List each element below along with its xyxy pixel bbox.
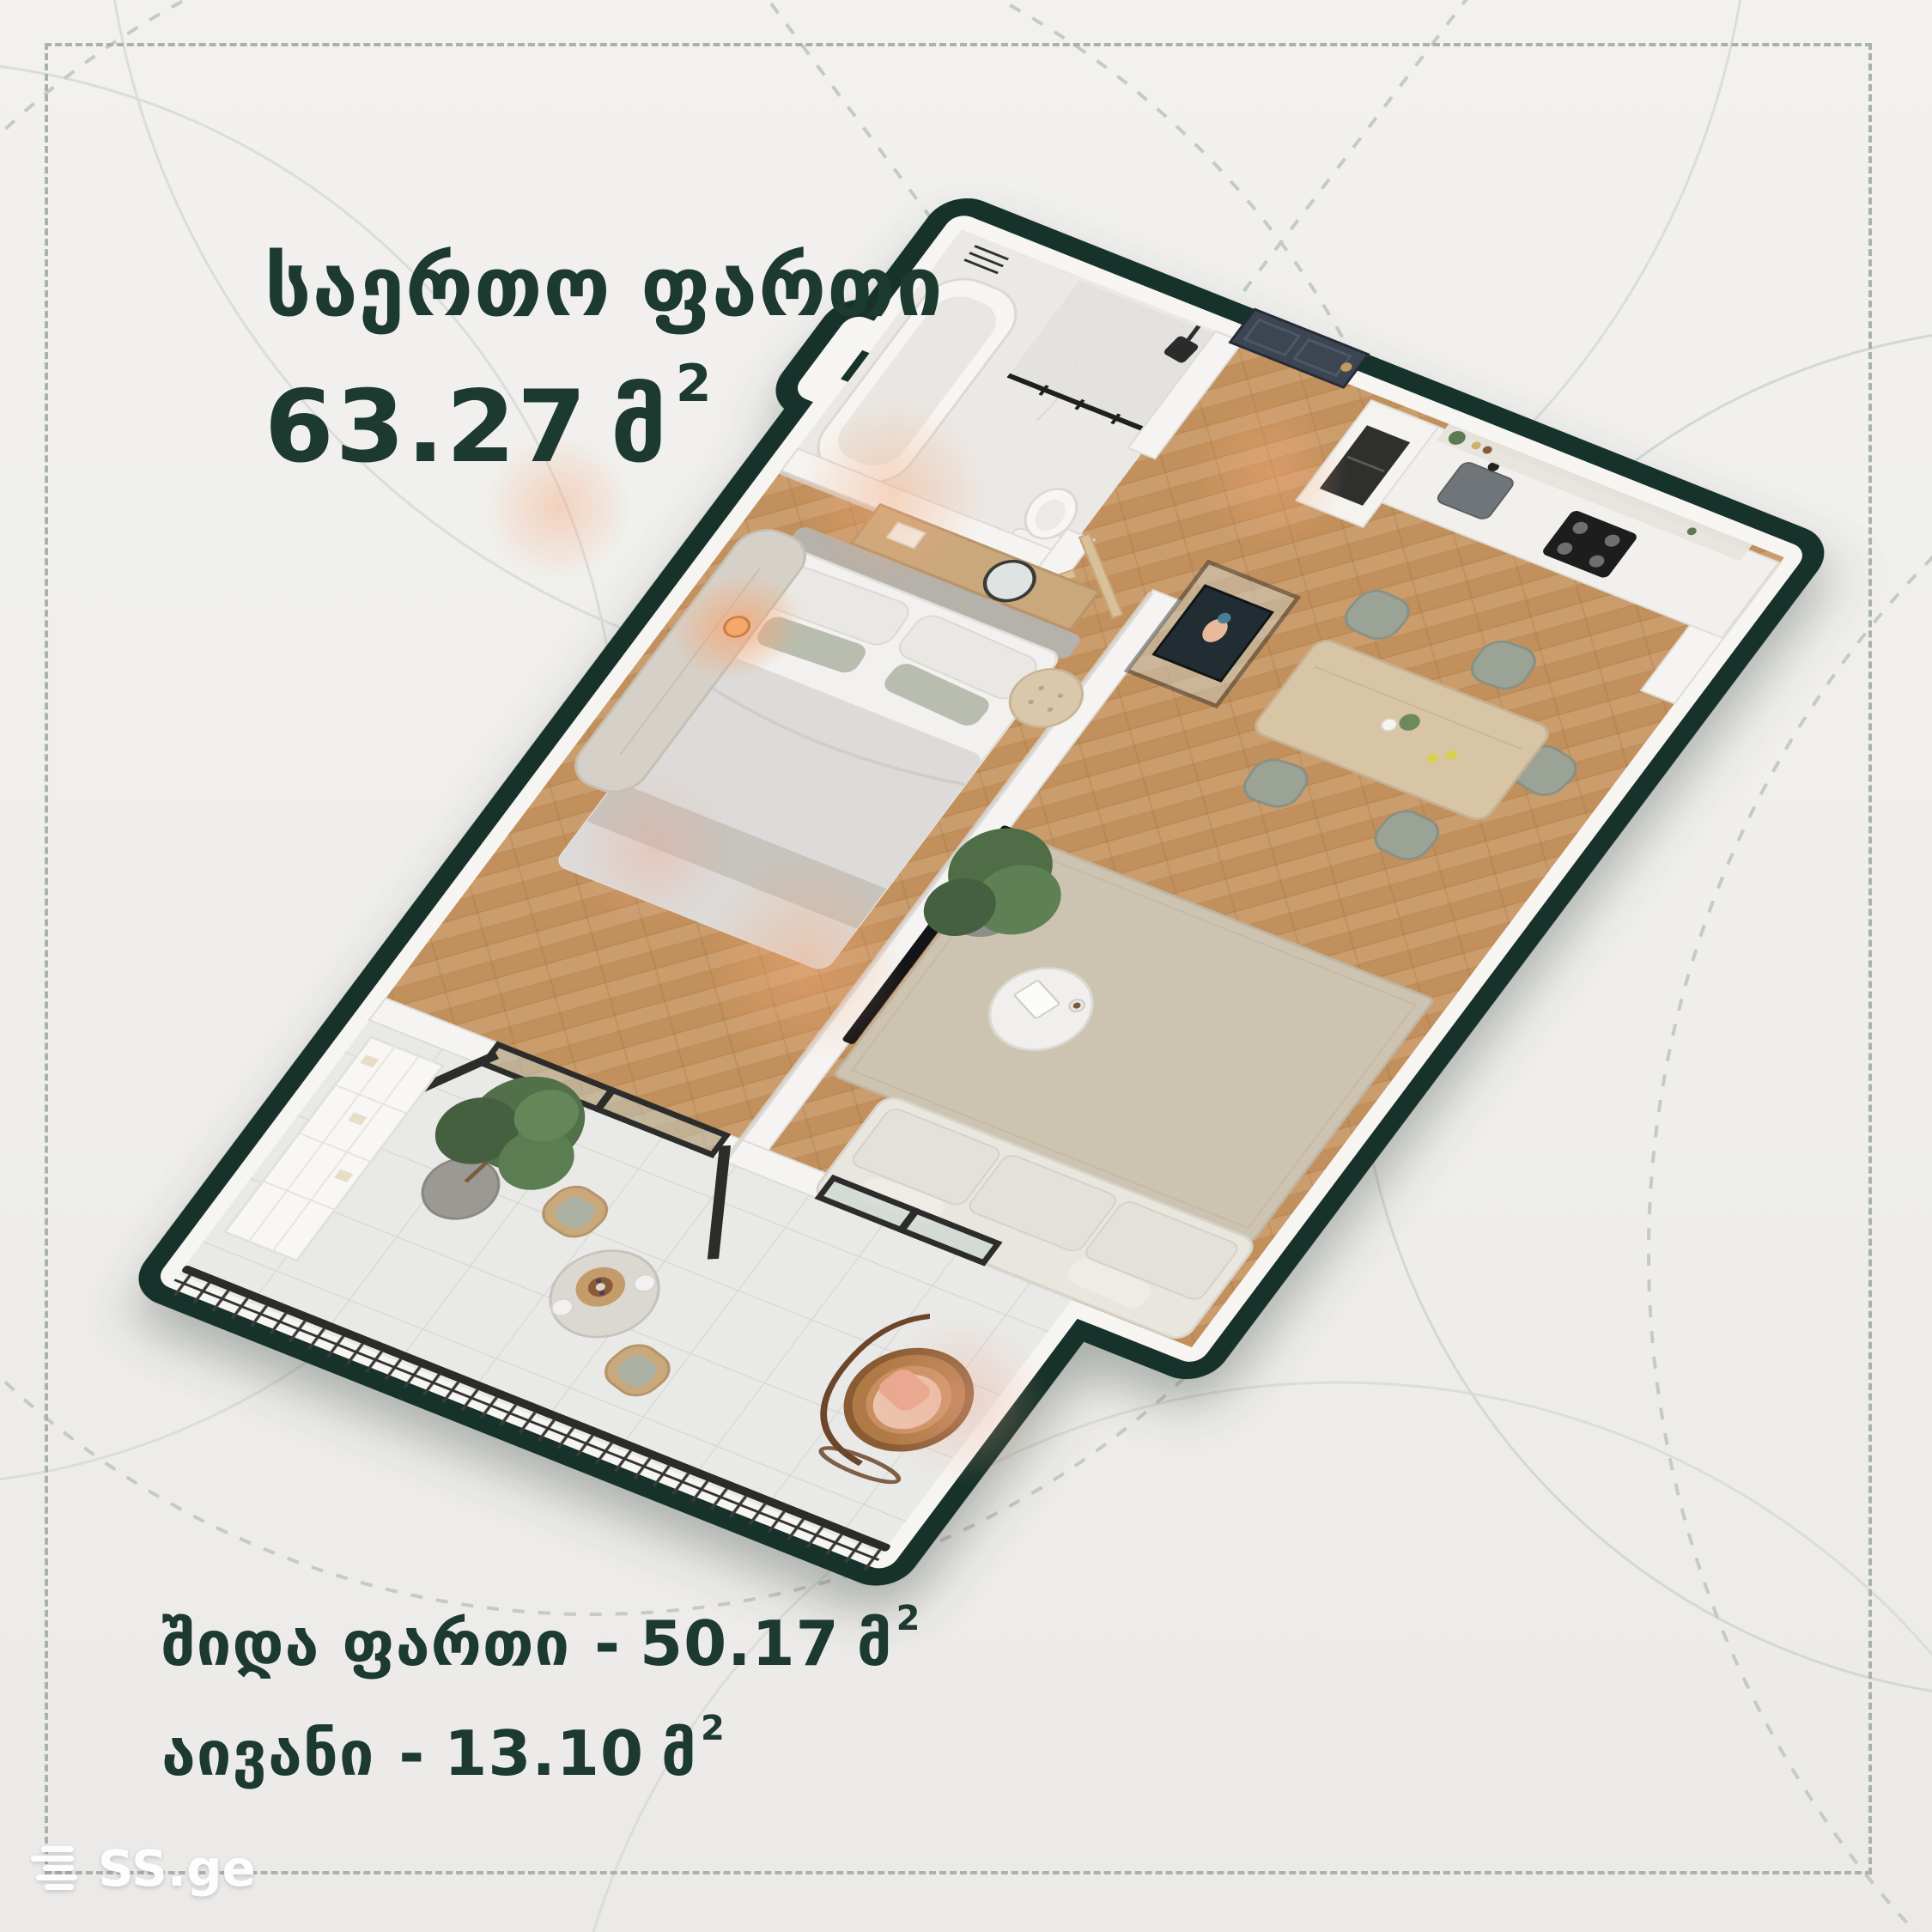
- ssge-logo-icon: [29, 1846, 84, 1891]
- total-area-value: 63.27: [264, 369, 588, 485]
- stat-label: აივანი: [161, 1717, 374, 1789]
- stat-sup: 2: [701, 1709, 726, 1748]
- stat-balcony-area: აივანი - 13.10 მ 2: [161, 1717, 920, 1789]
- stat-unit: მ: [661, 1717, 697, 1789]
- page-title: საერთო ფართი: [264, 242, 944, 333]
- ssge-logo-text: SS.ge: [98, 1839, 256, 1898]
- total-area: 63.27 მ 2: [264, 369, 944, 485]
- watermark: SS.ge: [29, 1839, 256, 1898]
- stat-sup: 2: [896, 1599, 921, 1638]
- stat-value: 50.17: [640, 1607, 840, 1680]
- header: საერთო ფართი 63.27 მ 2: [264, 242, 944, 485]
- page: საერთო ფართი 63.27 მ 2 შიდა ფართი - 50.1…: [0, 0, 1932, 1932]
- stat-unit: მ: [857, 1607, 893, 1680]
- area-stats: შიდა ფართი - 50.17 მ 2 აივანი - 13.10 მ …: [161, 1607, 920, 1827]
- stat-value: 13.10: [444, 1717, 644, 1789]
- total-area-sup: 2: [676, 354, 714, 414]
- stat-separator: -: [594, 1607, 621, 1680]
- stat-inner-area: შიდა ფართი - 50.17 მ 2: [161, 1607, 920, 1680]
- stat-label: შიდა ფართი: [161, 1607, 570, 1680]
- total-area-unit: მ: [611, 369, 669, 485]
- stat-separator: -: [398, 1717, 425, 1789]
